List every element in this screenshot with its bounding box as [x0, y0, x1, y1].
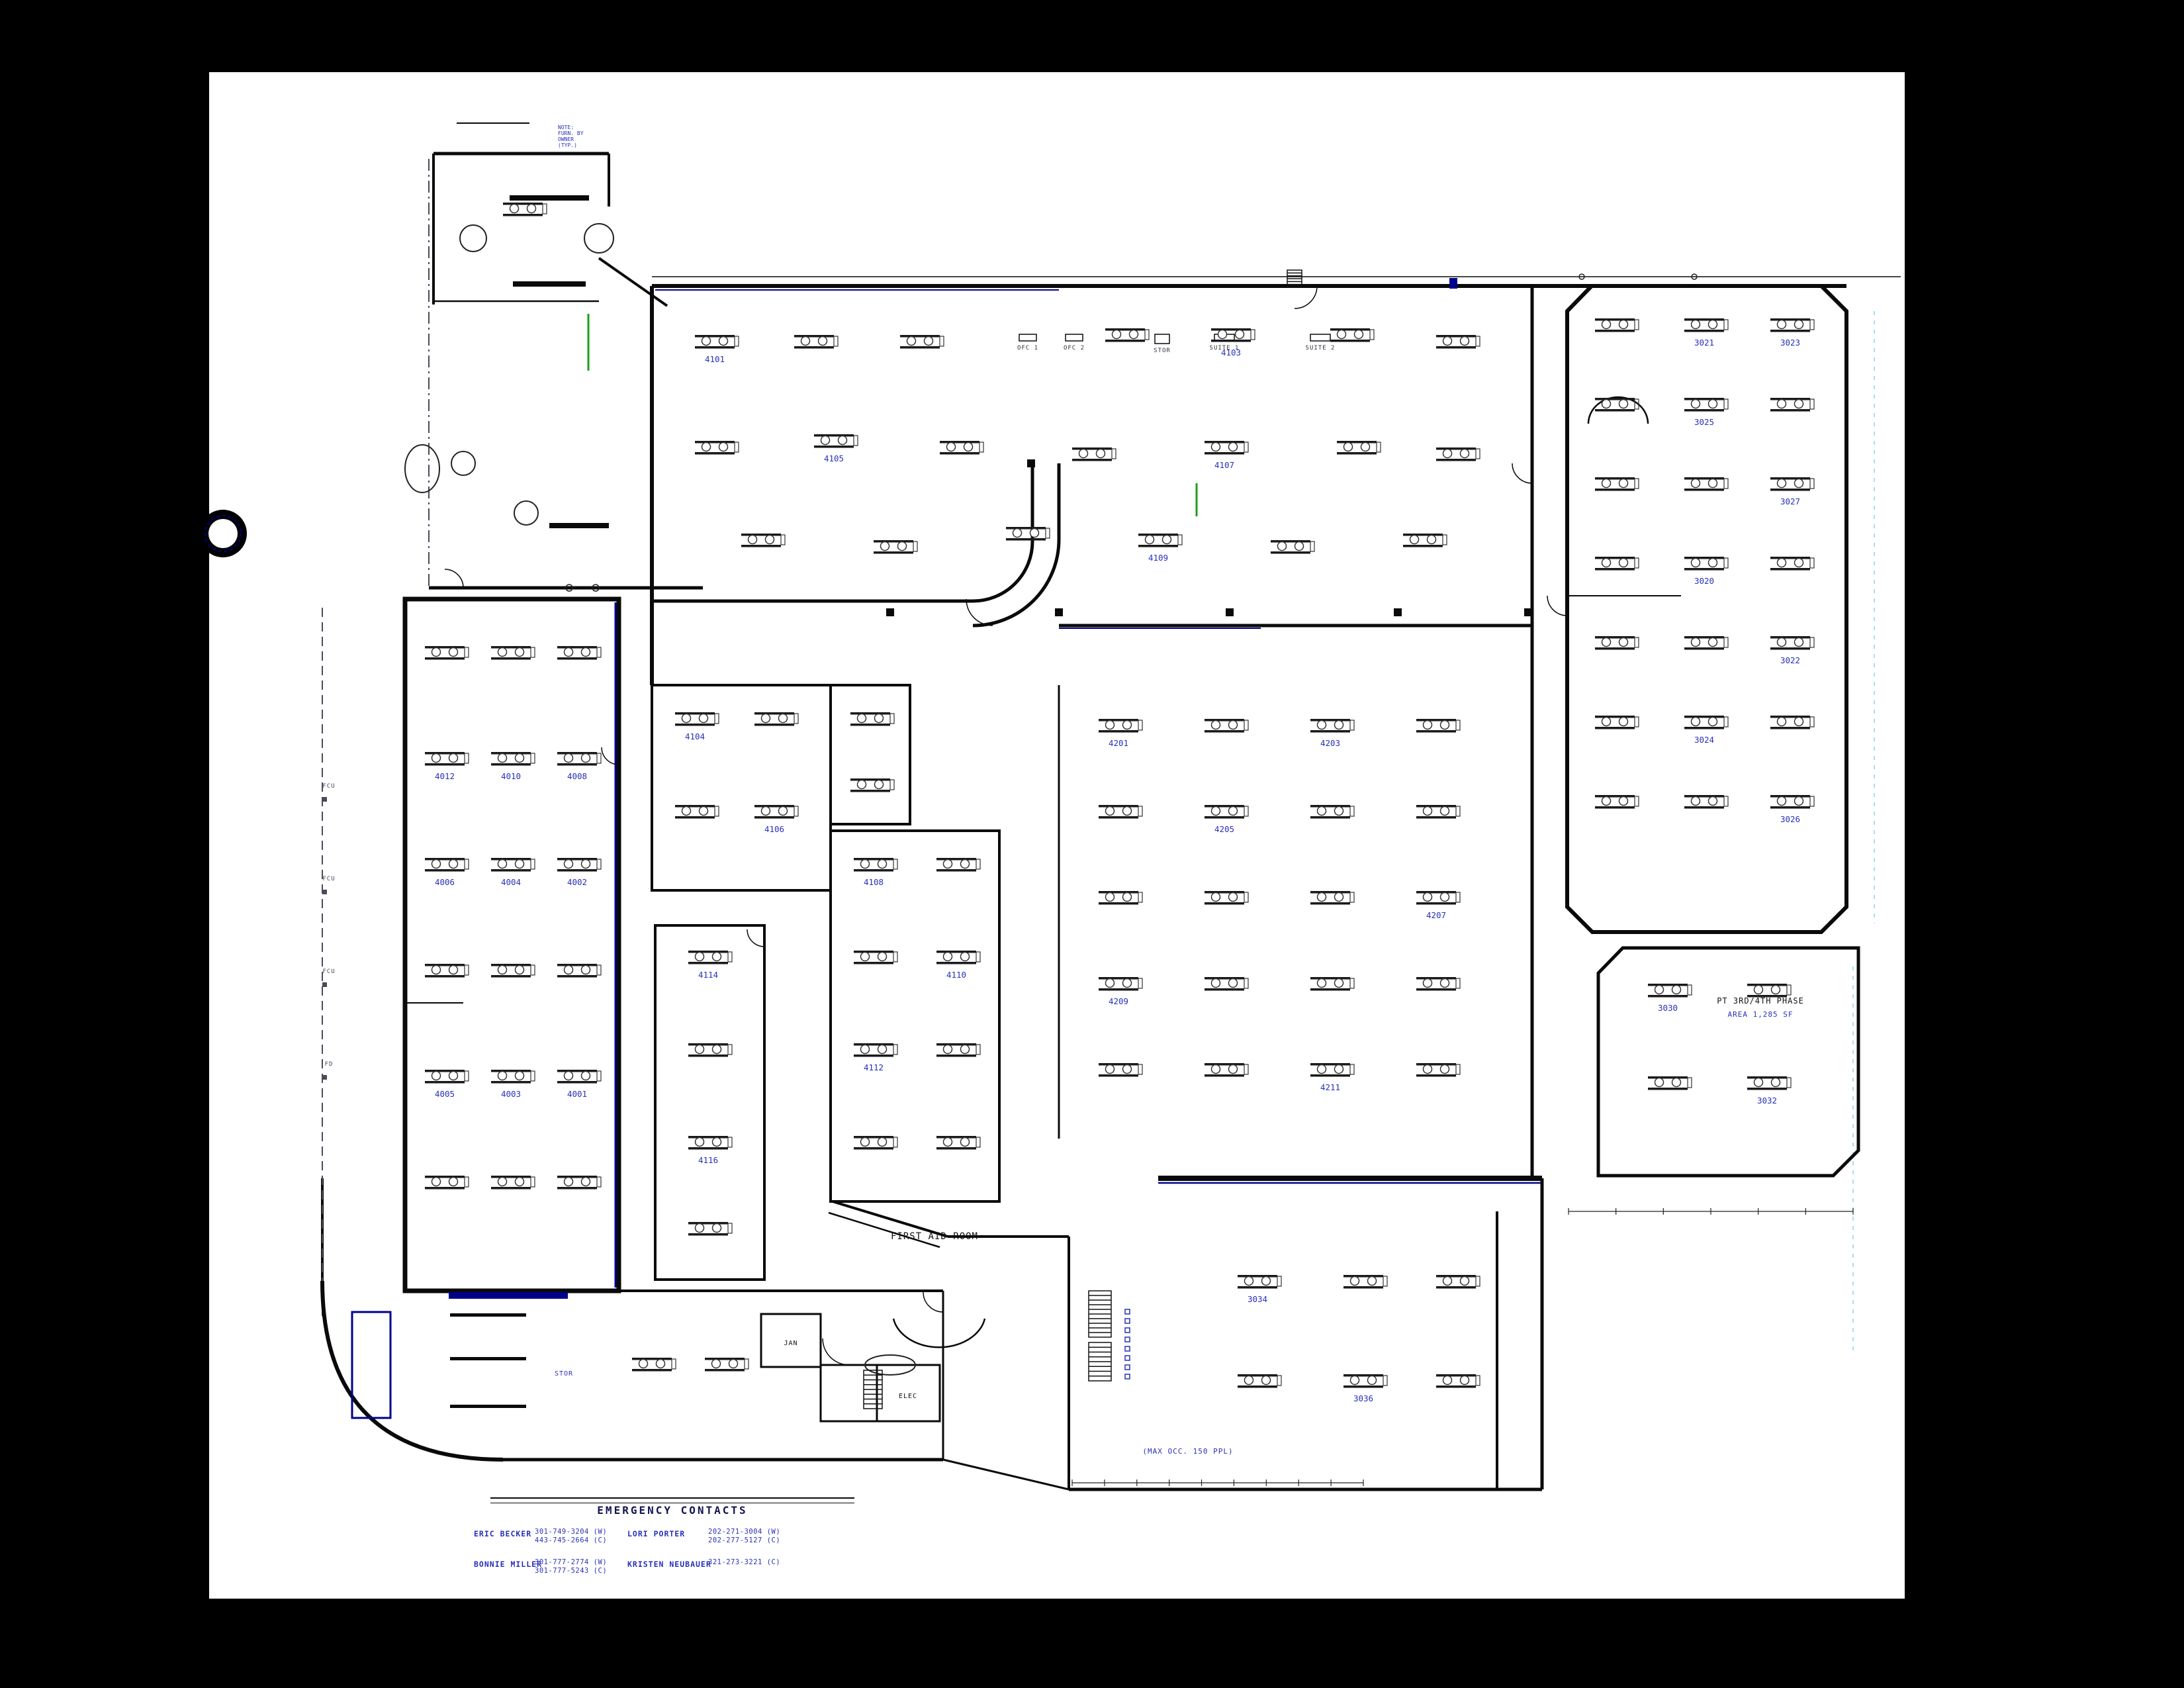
solid-element: [1449, 278, 1457, 289]
room-number: 4108: [864, 877, 884, 887]
room-number: 3026: [1780, 814, 1800, 824]
room-number: 4002: [567, 877, 587, 887]
floor-plan-drawing: 4012401040084006400440024005400340014101…: [0, 0, 2184, 1688]
legend-entry-name: ERIC BECKER: [474, 1529, 531, 1538]
room-number: 4203: [1320, 738, 1340, 748]
plan-label: SUITE 2: [1306, 345, 1336, 352]
room-number: 4004: [501, 877, 521, 887]
room-number: 4104: [685, 731, 705, 741]
room-number: 4209: [1109, 996, 1128, 1006]
legend-entry-phone: 321-273-3221 (C): [708, 1558, 780, 1567]
room-number: 4205: [1214, 824, 1234, 834]
plan-label: STOR: [1154, 348, 1171, 354]
room-number: 4116: [698, 1155, 718, 1165]
plan-label: FCU: [322, 968, 335, 975]
solid-element: [449, 1292, 568, 1299]
plan-label: JAN: [784, 1340, 797, 1347]
room-number: 3034: [1248, 1294, 1267, 1304]
room-number: 4112: [864, 1062, 884, 1072]
solid-element: [510, 195, 589, 201]
legend-divider: [490, 1497, 854, 1503]
room-number: 3027: [1780, 496, 1800, 506]
room-number: 4201: [1109, 738, 1128, 748]
plan-label: FIRST AID ROOM: [891, 1231, 978, 1242]
plan-label: FCU: [322, 876, 335, 882]
solid-element: [322, 982, 327, 987]
plan-label: STOR: [555, 1370, 573, 1378]
plan-label: AREA 1,285 SF: [1727, 1010, 1793, 1019]
legend-entry-name: KRISTEN NEUBAUER: [627, 1560, 711, 1569]
legend-entry-phone: 301-749-3204 (W) 443-745-2664 (C): [535, 1528, 607, 1545]
room-number: 4003: [501, 1089, 521, 1099]
solid-element: [450, 1357, 526, 1360]
room-number: 3020: [1694, 576, 1714, 586]
room-number: 4211: [1320, 1082, 1340, 1092]
room-number: 4010: [501, 771, 521, 781]
solid-element: [1027, 459, 1035, 467]
room-number: 4107: [1214, 460, 1234, 470]
plan-label: PT 3RD/4TH PHASE: [1717, 996, 1804, 1006]
phone-line: 301-749-3204 (W): [535, 1528, 607, 1536]
solid-element: [1055, 608, 1063, 616]
solid-element: [1226, 608, 1234, 616]
room-number: 3025: [1694, 417, 1714, 427]
solid-element: [322, 797, 327, 802]
room-number: 4114: [698, 970, 718, 980]
room-number: 3021: [1694, 338, 1714, 348]
room-number: 4006: [435, 877, 455, 887]
room-number: 4105: [824, 453, 844, 463]
plan-label: ELEC: [899, 1393, 917, 1400]
room-number: 3030: [1658, 1003, 1678, 1013]
plan-label: SUITE 1: [1210, 345, 1240, 352]
hole-punch-center: [208, 519, 238, 548]
solid-element: [1524, 608, 1532, 616]
solid-element: [322, 1075, 327, 1080]
room-number: 3024: [1694, 735, 1714, 745]
solid-element: [549, 523, 609, 528]
plan-notes-block: NOTE: FURN. BY OWNER (TYP.): [558, 124, 584, 148]
phone-line: 301-777-2774 (W): [535, 1558, 607, 1567]
phone-line: 301-777-5243 (C): [535, 1567, 607, 1575]
solid-element: [886, 608, 894, 616]
legend-entry-phone: 301-777-2774 (W) 301-777-5243 (C): [535, 1558, 607, 1575]
room-number: 4106: [764, 824, 784, 834]
phone-line: 321-273-3221 (C): [708, 1558, 780, 1567]
solid-element: [450, 1405, 526, 1408]
room-number: 4207: [1426, 910, 1446, 920]
room-number: 3022: [1780, 655, 1800, 665]
solid-element: [1394, 608, 1402, 616]
plan-label: FD: [325, 1061, 334, 1068]
room-number: 4109: [1148, 553, 1168, 563]
room-number: 4012: [435, 771, 455, 781]
room-number: 3036: [1353, 1393, 1373, 1403]
plan-label: (MAX OCC. 150 PPL): [1142, 1447, 1233, 1456]
plan-label: OFC 2: [1064, 345, 1085, 352]
solid-element: [513, 281, 586, 287]
legend-entry-name: LORI PORTER: [627, 1529, 685, 1538]
solid-element: [322, 890, 327, 894]
legend-entry-phone: 202-271-3004 (W) 202-277-5127 (C): [708, 1528, 780, 1545]
plan-label: FCU: [322, 783, 335, 790]
room-number: 4001: [567, 1089, 587, 1099]
room-number: 4008: [567, 771, 587, 781]
legend-entry-name: BONNIE MILLER: [474, 1560, 542, 1569]
solid-element: [450, 1313, 526, 1317]
room-number: 3023: [1780, 338, 1800, 348]
phone-line: 202-271-3004 (W): [708, 1528, 780, 1536]
room-number: 4110: [946, 970, 966, 980]
room-number: 3032: [1757, 1096, 1777, 1105]
legend-title: EMERGENCY CONTACTS: [490, 1504, 854, 1517]
scanned-floor-plan-page: 4012401040084006400440024005400340014101…: [0, 0, 2184, 1688]
plan-label: OFC 1: [1017, 345, 1038, 352]
phone-line: 443-745-2664 (C): [535, 1536, 607, 1545]
room-number: 4005: [435, 1089, 455, 1099]
room-number: 4101: [705, 354, 725, 364]
phone-line: 202-277-5127 (C): [708, 1536, 780, 1545]
